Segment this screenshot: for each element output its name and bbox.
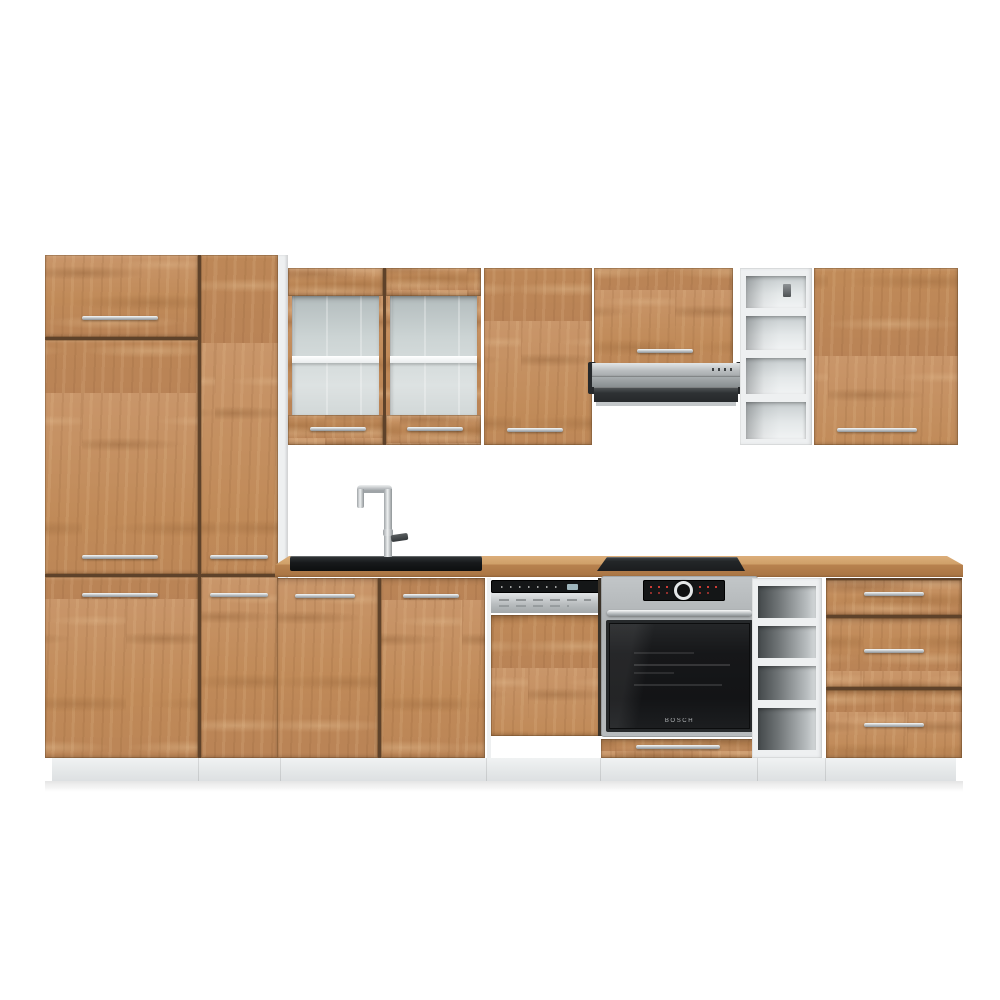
dishwasher xyxy=(487,578,600,758)
door-handle xyxy=(636,745,720,749)
door-handle xyxy=(310,427,366,431)
glass-door-left xyxy=(288,268,383,445)
glass-door-top-rail xyxy=(386,268,481,296)
tall-cabinet-door-bottom-right xyxy=(201,577,278,758)
wall-open-shelf xyxy=(740,268,812,445)
door-handle xyxy=(864,649,924,653)
sink xyxy=(290,556,482,571)
shelf-opening xyxy=(746,358,806,394)
door-handle xyxy=(295,594,355,598)
wall-cabinet xyxy=(484,268,592,445)
tall-cabinet-door-top-left xyxy=(45,255,198,337)
glass-door-top-rail xyxy=(288,268,383,296)
hood-visor-glass xyxy=(594,387,738,402)
door-handle xyxy=(210,555,268,559)
interior-shelf xyxy=(390,356,477,363)
shelf-opening xyxy=(758,666,816,700)
oven-display-right2 xyxy=(699,592,715,594)
cooktop xyxy=(597,557,745,571)
dishwasher-labels xyxy=(499,605,569,607)
extractor-hood xyxy=(588,360,744,408)
dishwasher-buttons xyxy=(501,586,559,588)
shelf-opening xyxy=(758,626,816,658)
oven-display-right xyxy=(699,586,719,588)
tall-cabinet-door-top-right xyxy=(201,255,278,574)
dishwasher-fascia xyxy=(491,593,600,613)
dishwasher-control-panel xyxy=(491,580,600,593)
hood-control-buttons xyxy=(712,368,736,371)
door-handle xyxy=(210,593,268,597)
faucet-spout-down xyxy=(357,489,364,508)
door-handle xyxy=(864,592,924,596)
shelf-opening xyxy=(746,402,806,439)
shelf-opening xyxy=(758,708,816,750)
glass-pane xyxy=(292,296,379,415)
tall-cabinet-door-bottom-left xyxy=(45,577,198,758)
shelf-opening xyxy=(746,316,806,350)
door-handle xyxy=(82,316,158,320)
oven-display-left2 xyxy=(650,592,668,594)
glass-door-right xyxy=(386,268,481,445)
oven-knob xyxy=(674,581,693,600)
base-open-shelf xyxy=(752,578,822,758)
door-handle xyxy=(864,723,924,727)
tall-cabinet-door-mid-left xyxy=(45,340,198,574)
faucet-lever xyxy=(391,533,409,542)
oven-door-glass: BOSCH xyxy=(606,620,753,732)
shelf-opening xyxy=(758,586,816,618)
dishwasher-wood-panel xyxy=(491,615,600,736)
dishwasher-labels xyxy=(499,599,591,601)
door-handle xyxy=(82,593,158,597)
door-handle xyxy=(407,427,463,431)
wall-bracket xyxy=(783,284,791,297)
sink-base-door-left xyxy=(277,578,378,758)
dishwasher-display xyxy=(567,584,578,590)
oven-brand-logo: BOSCH xyxy=(606,718,753,724)
interior-shelf xyxy=(292,356,379,363)
hood-bottom-lip xyxy=(596,402,736,406)
faucet-riser xyxy=(384,489,392,557)
door-handle xyxy=(403,594,459,598)
hood-lower-band xyxy=(592,377,740,387)
oven: BOSCH xyxy=(601,576,758,737)
floor-shadow xyxy=(45,781,963,792)
wall-cabinet-right xyxy=(814,268,958,445)
door-handle xyxy=(637,349,693,353)
door-handle xyxy=(837,428,917,432)
oven-handle xyxy=(607,610,752,616)
sink-base-door-right xyxy=(381,578,485,758)
glass-pane xyxy=(390,296,477,415)
oven-display-left xyxy=(650,586,672,588)
plinth xyxy=(52,758,956,781)
oven-control-panel xyxy=(643,580,725,601)
hood-front-band xyxy=(592,363,740,377)
door-handle xyxy=(507,428,563,432)
kitchen-product-photo: BOSCH xyxy=(0,0,1000,1000)
door-handle xyxy=(82,555,158,559)
shelf-opening xyxy=(746,276,806,308)
drawer-front-1 xyxy=(826,580,962,615)
